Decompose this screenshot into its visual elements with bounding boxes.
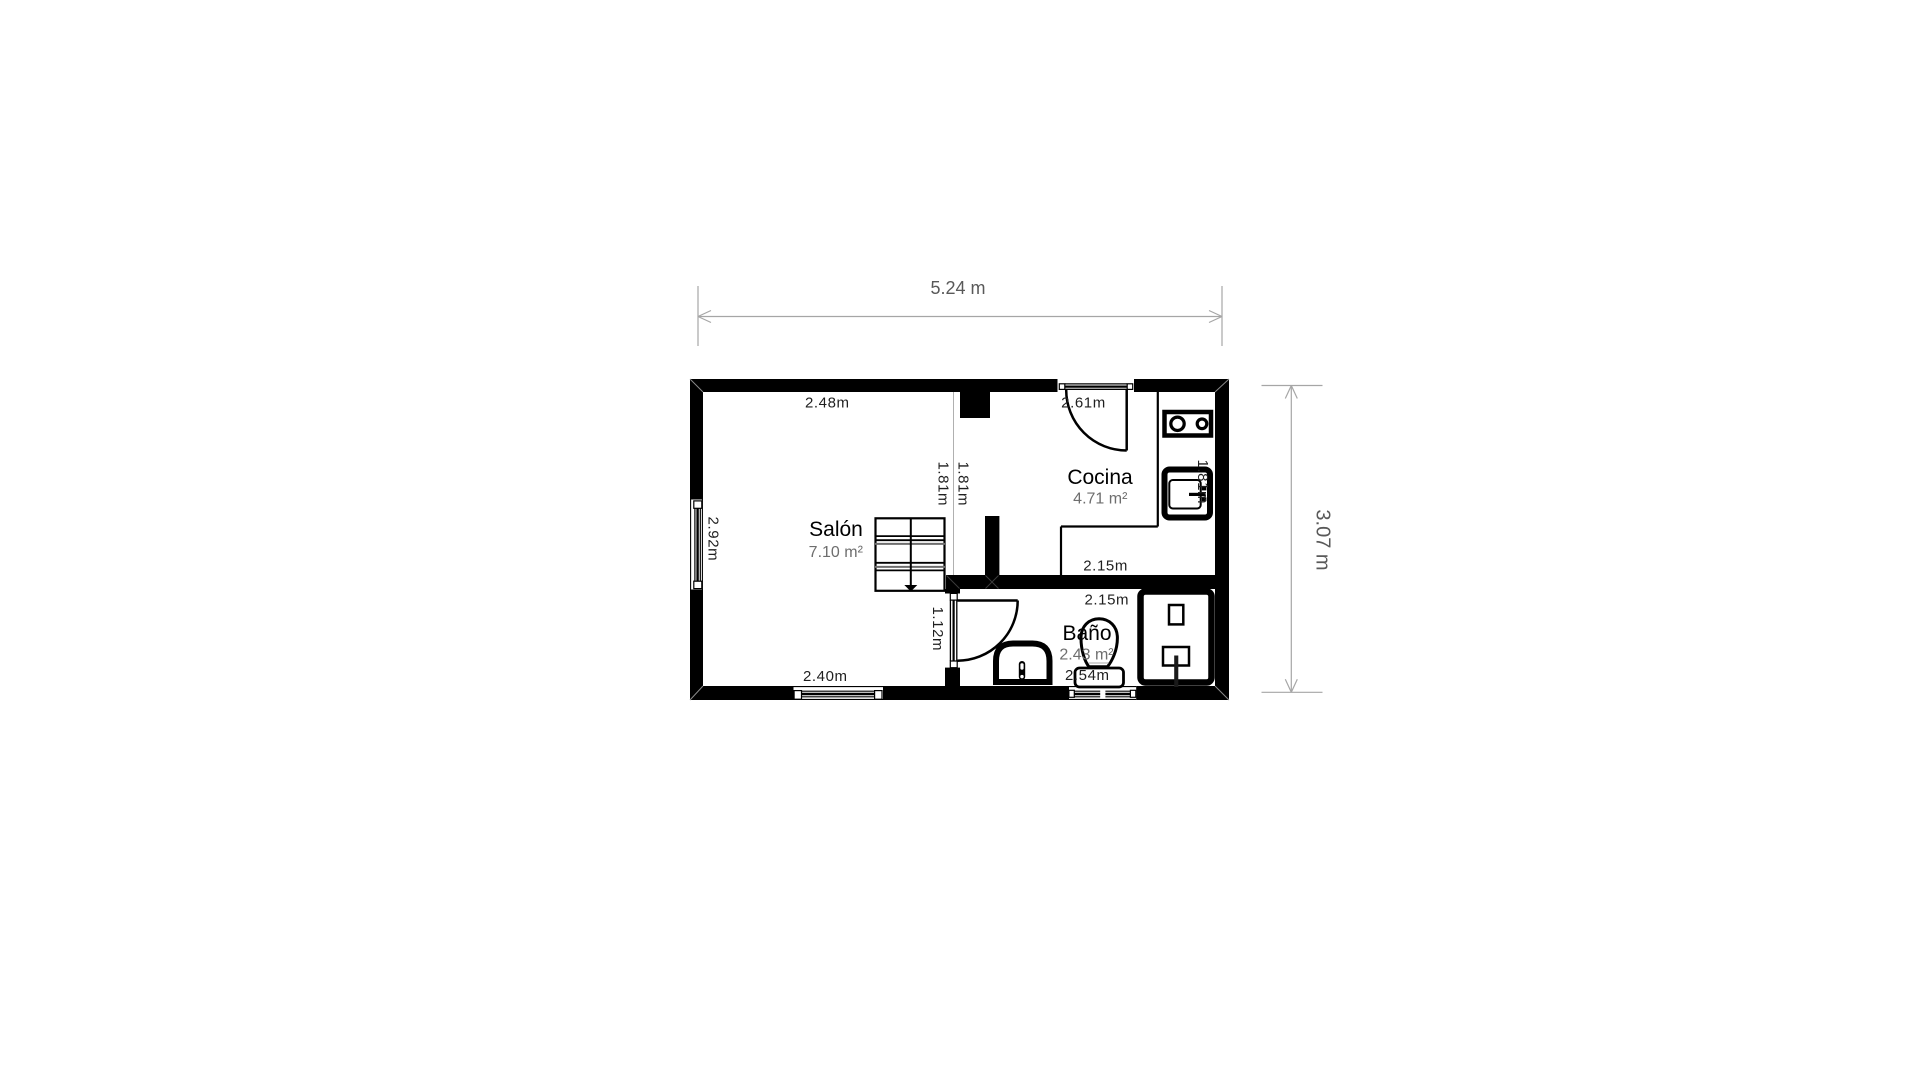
svg-text:3.07 m: 3.07 m: [1312, 509, 1334, 570]
svg-text:2.61m: 2.61m: [1061, 395, 1106, 412]
svg-text:1.81m: 1.81m: [955, 461, 972, 506]
svg-text:Baño: Baño: [1062, 622, 1111, 645]
svg-text:1.81m: 1.81m: [934, 461, 951, 506]
svg-text:2.15m: 2.15m: [1084, 591, 1129, 608]
svg-text:Cocina: Cocina: [1067, 466, 1133, 489]
svg-text:2.40m: 2.40m: [803, 668, 848, 685]
svg-text:1.81m: 1.81m: [1194, 459, 1211, 504]
svg-text:Salón: Salón: [809, 518, 863, 541]
svg-text:2.48m: 2.48m: [805, 395, 850, 412]
svg-text:2.92m: 2.92m: [704, 517, 721, 562]
svg-text:7.10 m²: 7.10 m²: [809, 544, 864, 561]
svg-text:2.15m: 2.15m: [1083, 557, 1128, 574]
svg-text:2.54m: 2.54m: [1065, 667, 1110, 684]
svg-text:5.24 m: 5.24 m: [930, 278, 985, 298]
svg-text:4.71 m²: 4.71 m²: [1073, 491, 1128, 508]
svg-text:2.43 m²: 2.43 m²: [1059, 647, 1114, 664]
svg-text:1.12m: 1.12m: [929, 606, 946, 651]
